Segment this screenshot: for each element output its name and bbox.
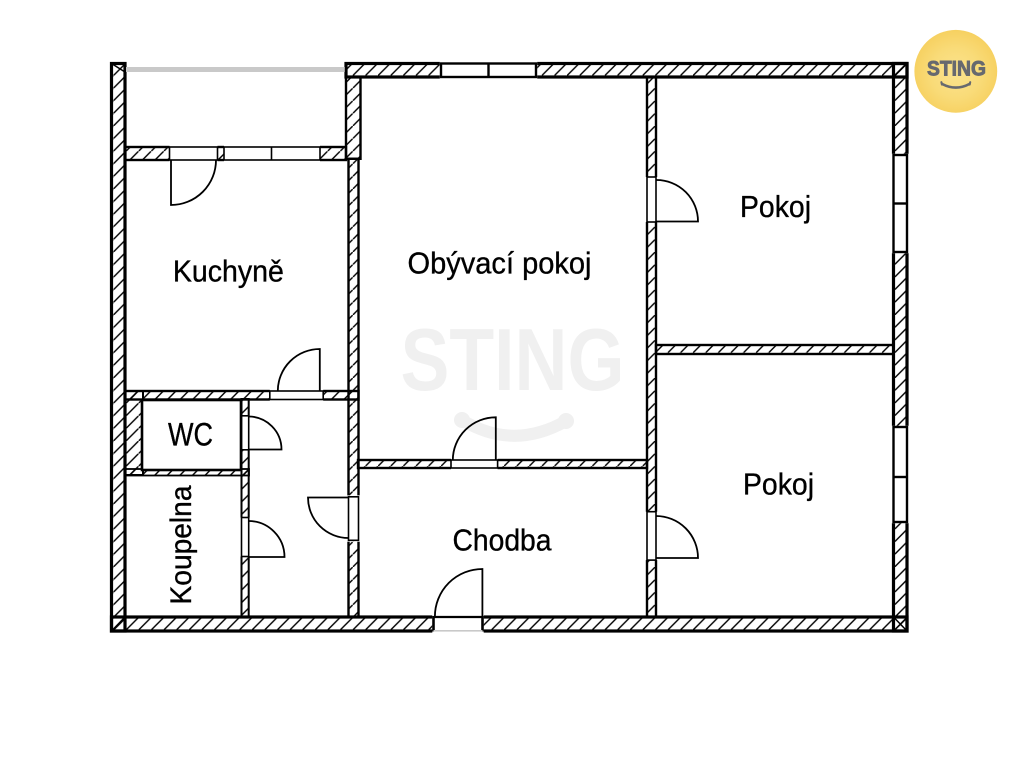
svg-text:Pokoj: Pokoj [740, 189, 811, 224]
svg-text:Koupelna: Koupelna [165, 485, 198, 604]
svg-text:Pokoj: Pokoj [743, 467, 814, 502]
svg-text:Chodba: Chodba [453, 523, 553, 558]
svg-text:Kuchyně: Kuchyně [173, 254, 284, 289]
svg-text:STING: STING [401, 310, 625, 409]
svg-text:STING: STING [927, 58, 986, 81]
svg-text:WC: WC [168, 417, 213, 453]
svg-text:Obývací pokoj: Obývací pokoj [408, 246, 592, 281]
